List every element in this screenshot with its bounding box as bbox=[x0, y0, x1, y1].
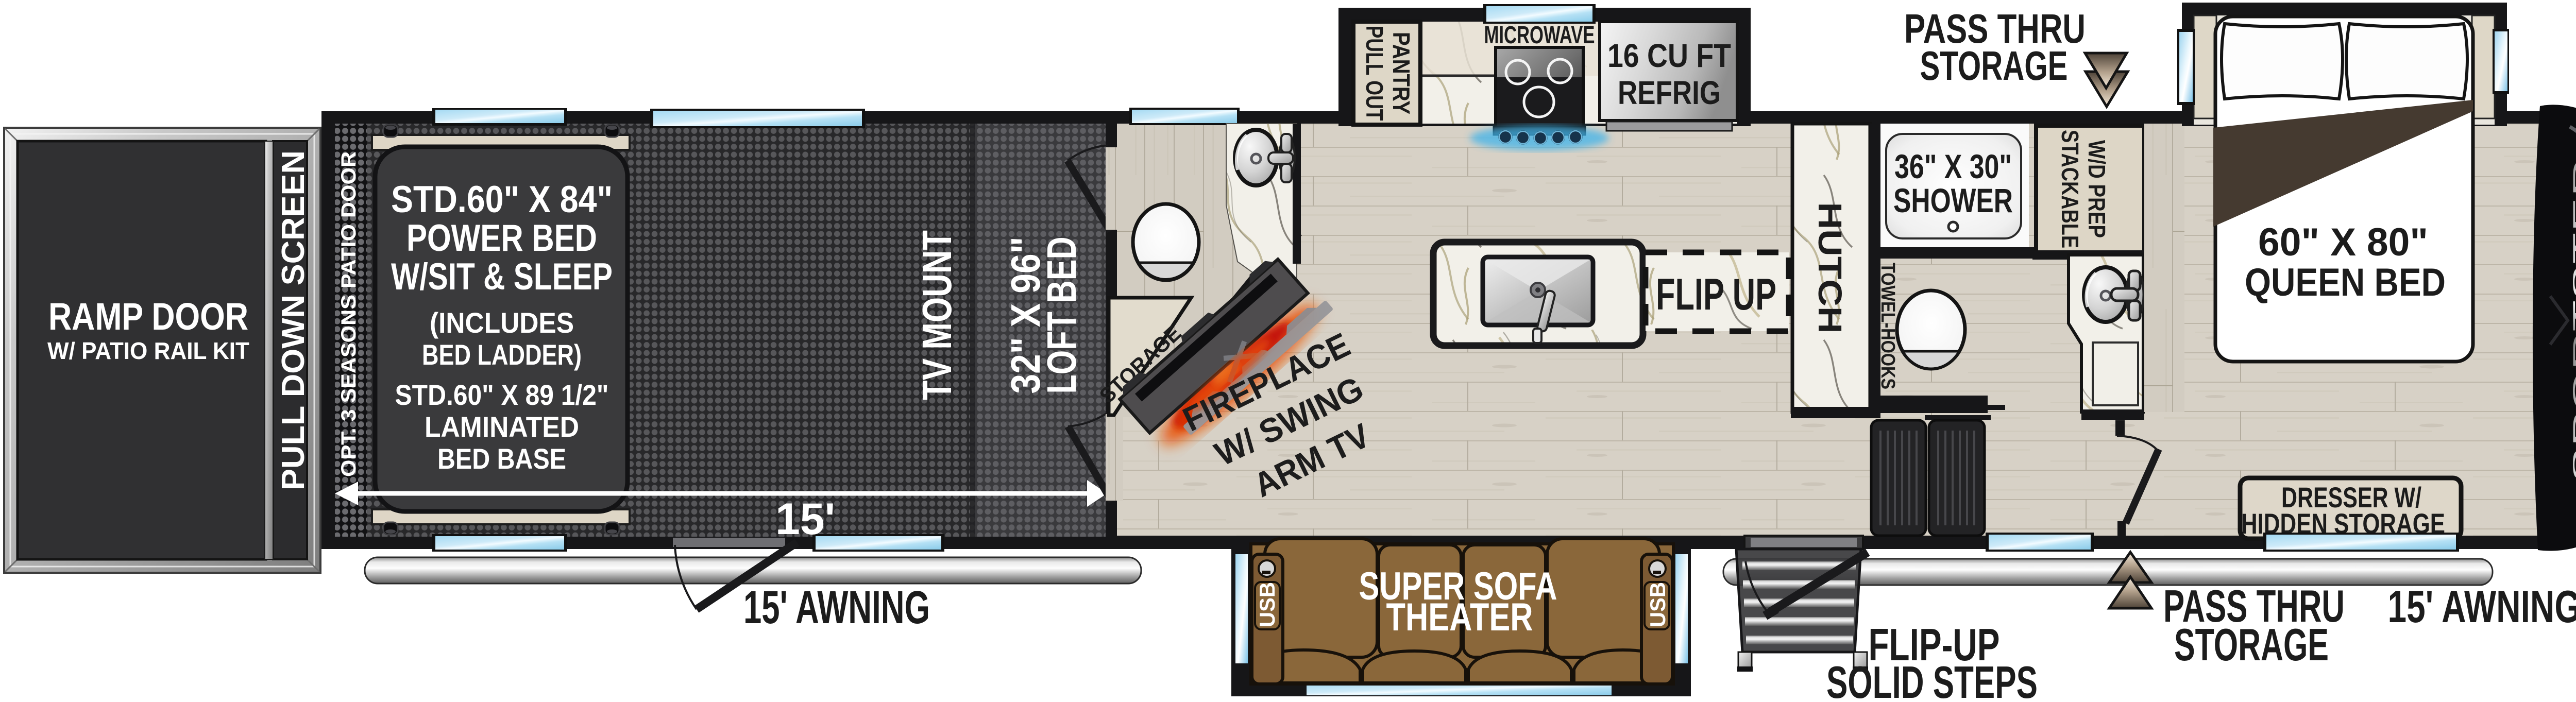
svg-text:FLIP UP: FLIP UP bbox=[1656, 270, 1776, 319]
svg-text:W/D PREP: W/D PREP bbox=[2083, 140, 2110, 238]
svg-text:15' AWNING: 15' AWNING bbox=[743, 582, 930, 633]
svg-text:36" X 30": 36" X 30" bbox=[1894, 147, 2012, 185]
svg-text:BED BASE: BED BASE bbox=[437, 442, 566, 475]
svg-text:(INCLUDES: (INCLUDES bbox=[430, 306, 574, 339]
svg-text:USB: USB bbox=[1646, 582, 1670, 627]
svg-text:15': 15' bbox=[775, 494, 835, 544]
svg-text:PANTRY: PANTRY bbox=[1388, 32, 1415, 114]
svg-text:16 CU FT: 16 CU FT bbox=[1607, 37, 1731, 74]
svg-text:SOLID STEPS: SOLID STEPS bbox=[1826, 657, 2038, 702]
svg-text:BED LADDER): BED LADDER) bbox=[422, 338, 582, 371]
svg-text:SPORTSTER: SPORTSTER bbox=[2567, 159, 2576, 482]
svg-text:LAMINATED: LAMINATED bbox=[425, 410, 579, 443]
svg-text:LOFT BED: LOFT BED bbox=[1039, 237, 1084, 394]
svg-text:HUTCH: HUTCH bbox=[1811, 202, 1849, 334]
svg-text:TV MOUNT: TV MOUNT bbox=[914, 230, 960, 400]
svg-text:STORAGE: STORAGE bbox=[2174, 619, 2329, 670]
svg-text:60" X 80": 60" X 80" bbox=[2258, 220, 2428, 264]
svg-text:POWER BED: POWER BED bbox=[406, 217, 597, 259]
svg-text:STD.60" X 89 1/2": STD.60" X 89 1/2" bbox=[395, 379, 609, 411]
svg-text:MICROWAVE: MICROWAVE bbox=[1484, 22, 1595, 49]
svg-text:STACKABLE: STACKABLE bbox=[2057, 130, 2083, 248]
svg-text:TOWEL-HOOKS: TOWEL-HOOKS bbox=[1877, 263, 1899, 389]
svg-text:W/ PATIO RAIL KIT: W/ PATIO RAIL KIT bbox=[47, 337, 249, 364]
svg-text:15' AWNING: 15' AWNING bbox=[2388, 581, 2576, 632]
svg-text:RAMP DOOR: RAMP DOOR bbox=[48, 295, 248, 338]
svg-text:PULL OUT: PULL OUT bbox=[1361, 26, 1388, 121]
svg-text:SHOWER: SHOWER bbox=[1893, 181, 2013, 219]
svg-text:REFRIG: REFRIG bbox=[1618, 74, 1721, 111]
svg-text:PULL DOWN SCREEN: PULL DOWN SCREEN bbox=[276, 150, 311, 490]
svg-text:W/SIT & SLEEP: W/SIT & SLEEP bbox=[391, 256, 613, 298]
svg-text:STD.60" X 84": STD.60" X 84" bbox=[391, 179, 613, 220]
svg-text:THEATER: THEATER bbox=[1386, 595, 1533, 639]
svg-text:QUEEN BED: QUEEN BED bbox=[2245, 261, 2446, 304]
svg-text:STORAGE: STORAGE bbox=[1920, 43, 2068, 89]
svg-text:OPT. 3 SEASONS PATIO DOOR: OPT. 3 SEASONS PATIO DOOR bbox=[337, 151, 360, 477]
svg-text:USB: USB bbox=[1255, 582, 1279, 627]
